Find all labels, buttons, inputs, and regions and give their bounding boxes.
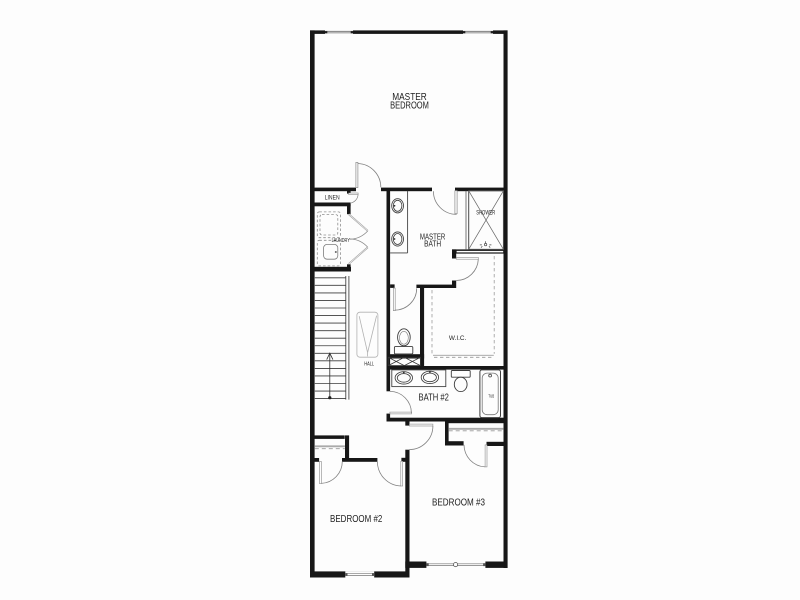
svg-text:W.I.C.: W.I.C. — [449, 335, 467, 342]
svg-text:BATH #2: BATH #2 — [419, 393, 450, 404]
svg-text:TUB: TUB — [488, 394, 494, 399]
svg-text:SHOWER: SHOWER — [476, 210, 495, 216]
svg-text:BEDROOM: BEDROOM — [390, 101, 429, 112]
svg-text:BEDROOM #3: BEDROOM #3 — [432, 497, 485, 508]
svg-text:HALL: HALL — [364, 362, 374, 368]
svg-text:LINEN: LINEN — [325, 195, 340, 202]
svg-text:BEDROOM #2: BEDROOM #2 — [330, 514, 383, 525]
svg-text:LAUNDRY: LAUNDRY — [332, 238, 350, 244]
svg-text:BATH: BATH — [424, 238, 441, 248]
